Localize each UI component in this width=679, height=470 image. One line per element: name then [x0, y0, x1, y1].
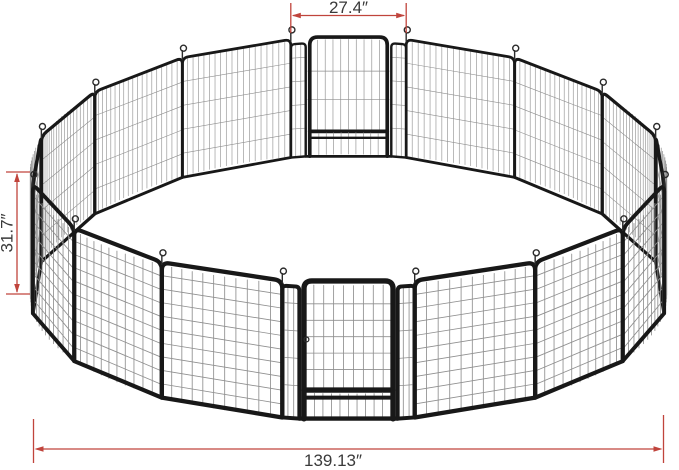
playpen-dimension-diagram: 27.4″ 31.7″ 139.13″ [0, 0, 679, 470]
hinge-pin-hook [289, 27, 295, 42]
playpen-figure-svg: 27.4″ 31.7″ 139.13″ [0, 0, 679, 470]
fence-panel [405, 40, 515, 177]
door-panel [282, 281, 414, 419]
arrowhead-left [292, 13, 301, 19]
dimension-panel-height: 31.7″ [0, 172, 30, 294]
dimension-panel-width: 27.4″ [291, 0, 406, 33]
fence-panel [74, 230, 162, 397]
door-panel [290, 37, 407, 157]
hinge-pin-hooks [31, 27, 668, 283]
dimension-overall-width-label: 139.13″ [304, 451, 362, 470]
arrowhead-down [14, 284, 20, 293]
dimension-overall-width: 139.13″ [34, 415, 664, 470]
arrowhead-left [35, 446, 44, 452]
fence-panel [415, 263, 535, 417]
arrowhead-right [654, 446, 663, 452]
fence-panel [162, 263, 282, 417]
arrowhead-up [14, 173, 20, 182]
fence-panel [535, 230, 623, 397]
fence-panel [514, 59, 604, 213]
fence-panels [30, 37, 667, 419]
dimension-panel-width-label: 27.4″ [329, 0, 368, 17]
fence-panel [94, 59, 184, 213]
dimension-panel-height-label: 31.7″ [0, 213, 17, 252]
arrowhead-right [396, 13, 405, 19]
fence-panel [181, 40, 291, 177]
